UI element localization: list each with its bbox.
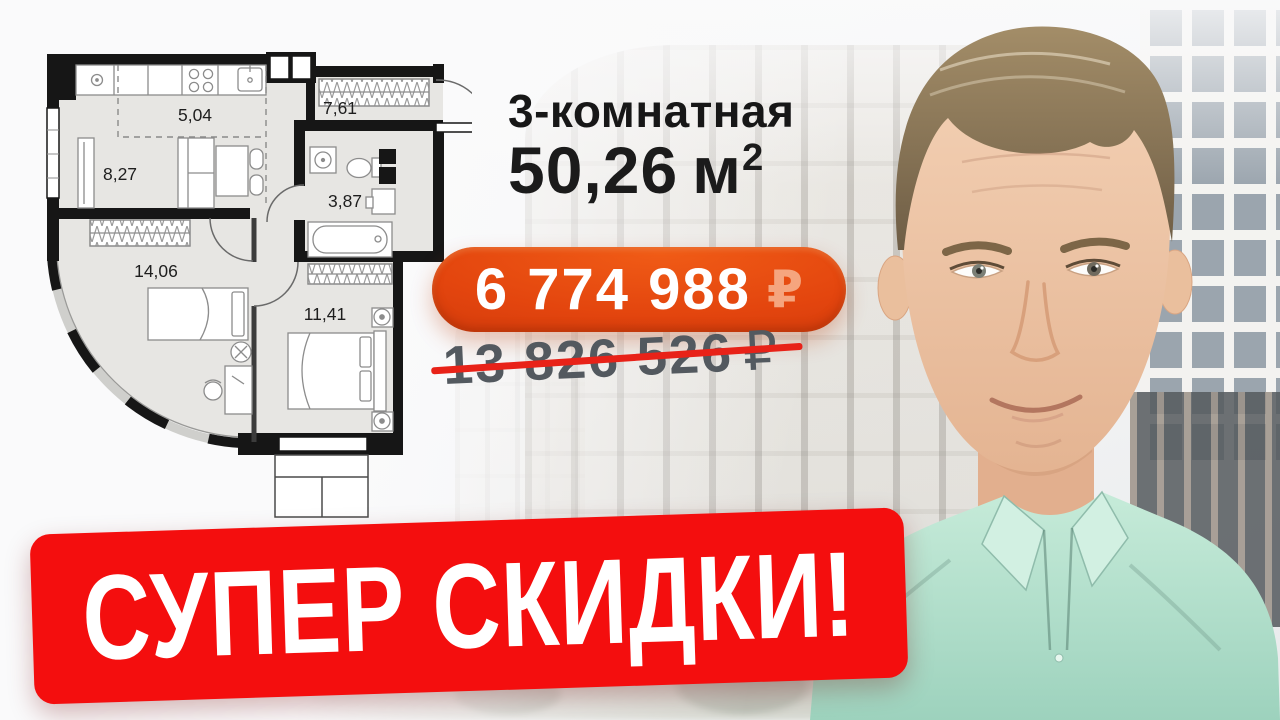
- room-label-hallway: 7,61: [323, 98, 357, 118]
- thumbnail: 5,04 7,61 8,27 3,87 14,06 11,41 3-комнат…: [0, 0, 1280, 720]
- entry-door-leaf: [436, 123, 472, 132]
- shaft-block: [379, 167, 396, 184]
- nightstand-lamp-icon: [372, 412, 393, 431]
- floor-plan: 5,04 7,61 8,27 3,87 14,06 11,41: [42, 50, 472, 520]
- left-window: [47, 108, 59, 198]
- area-exponent: 2: [742, 136, 764, 179]
- top-window-1: [270, 56, 289, 79]
- sofa: [178, 138, 214, 208]
- area-label: 50,26м2: [508, 132, 764, 208]
- discount-banner-text: СУПЕР СКИДКИ!: [81, 524, 858, 687]
- room-label-bedroom-large: 14,06: [134, 261, 178, 281]
- room-label-bedroom-small: 11,41: [304, 304, 347, 324]
- shirt-button: [1055, 654, 1063, 662]
- dining-table: [216, 146, 248, 196]
- rooms-count-label: 3-комнатная: [508, 84, 794, 138]
- area-value: 50,26: [508, 133, 678, 207]
- toilet-icon: [347, 158, 381, 178]
- double-bed: [288, 331, 386, 411]
- bedroom-large-wardrobe: [90, 220, 190, 246]
- tv-stand: [78, 138, 94, 208]
- new-price-value: 6 774 988: [475, 256, 751, 323]
- top-window-2: [292, 56, 311, 79]
- balcony: [275, 455, 368, 517]
- fan-icon: [231, 342, 251, 362]
- desk: [225, 366, 252, 414]
- french-window: [279, 437, 367, 451]
- nightstand-lamp-icon: [372, 308, 393, 327]
- washbasin-icon: [310, 147, 336, 173]
- room-label-kitchen: 5,04: [178, 105, 212, 125]
- area-unit: м: [692, 133, 742, 207]
- room-label-bathroom: 3,87: [328, 191, 362, 211]
- discount-banner: СУПЕР СКИДКИ!: [30, 507, 909, 704]
- single-bed: [148, 288, 248, 340]
- shaft-block: [379, 149, 396, 164]
- sink-icon: [238, 65, 262, 91]
- bathtub-icon: [308, 222, 392, 257]
- bedroom-small-wardrobe: [308, 264, 392, 284]
- room-label-living: 8,27: [103, 164, 137, 184]
